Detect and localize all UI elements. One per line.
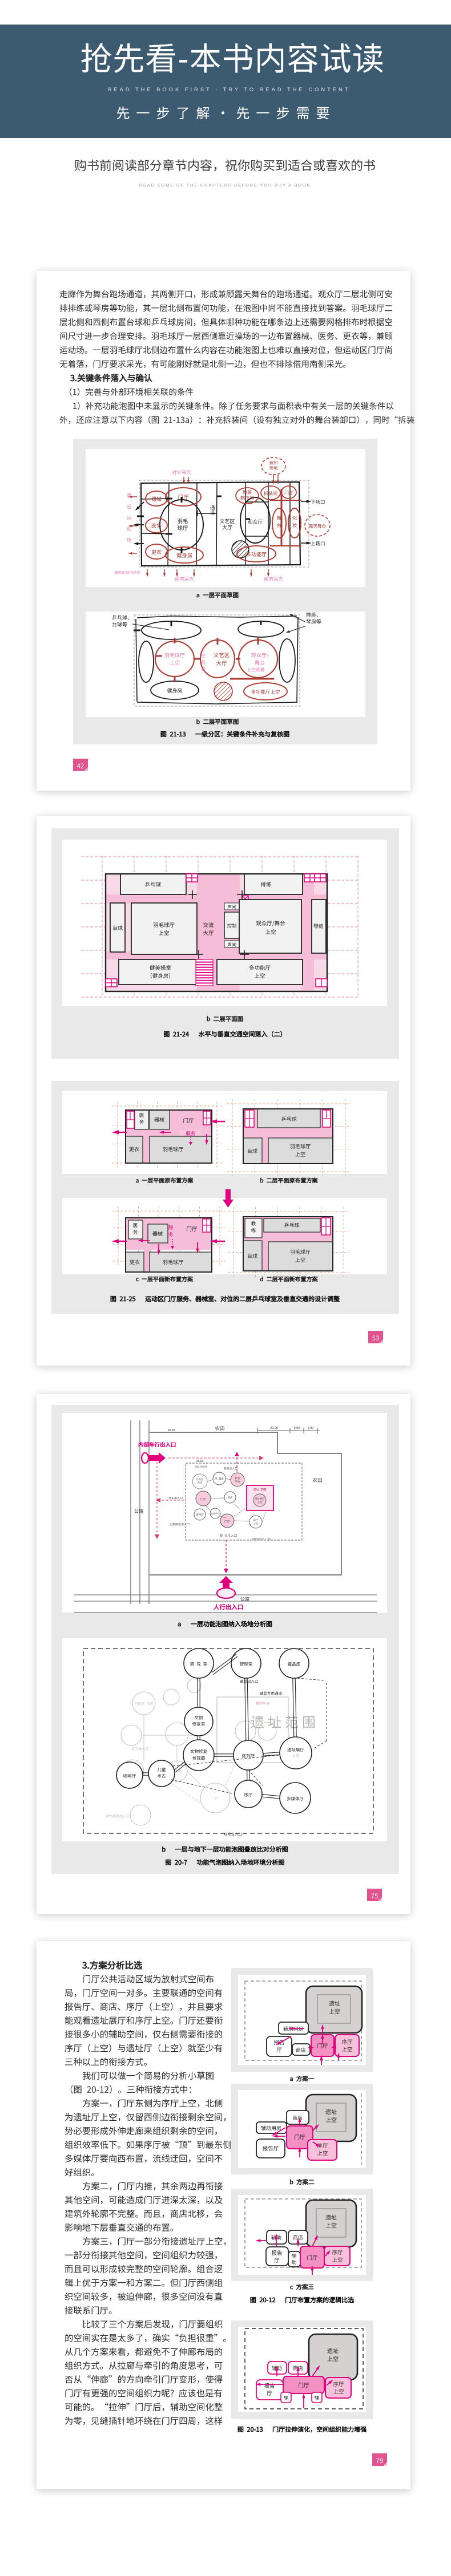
svg-text:9.00: 9.00 <box>294 1427 300 1430</box>
svg-text:READ SOME OF THE CHAPTERS BEFO: READ SOME OF THE CHAPTERS BEFORE YOU BUY… <box>139 183 311 188</box>
svg-text:69.00: 69.00 <box>168 1429 175 1432</box>
svg-text:9.00: 9.00 <box>308 1427 314 1430</box>
svg-text:46.00: 46.00 <box>196 1460 204 1463</box>
svg-text:20.00: 20.00 <box>270 1427 278 1430</box>
svg-text:READ THE BOOK FIRST - TRY TO R: READ THE BOOK FIRST - TRY TO READ THE CO… <box>108 87 351 93</box>
